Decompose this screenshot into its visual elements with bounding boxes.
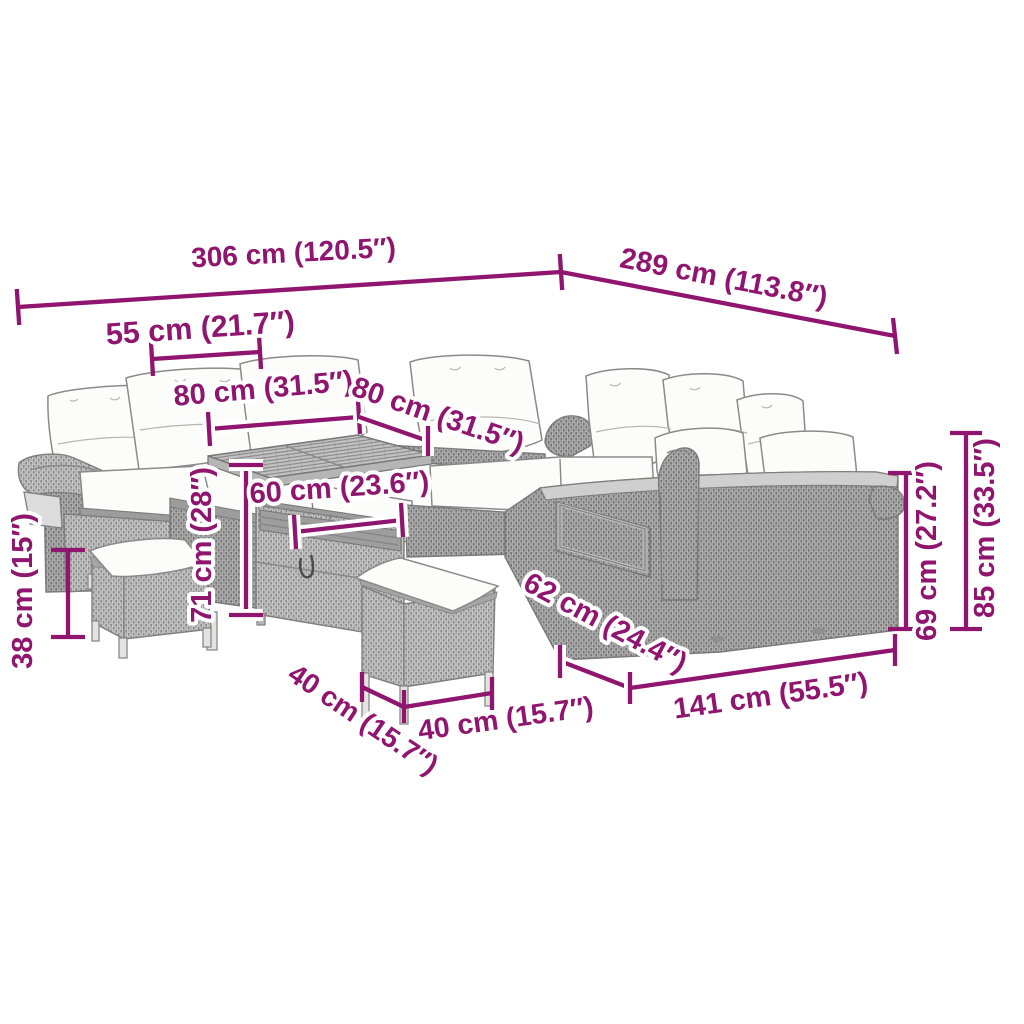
svg-text:69 cm (27.2″): 69 cm (27.2″) [911,461,943,641]
svg-text:71 cm (28″): 71 cm (28″) [186,467,218,623]
svg-text:38 cm (15″): 38 cm (15″) [7,513,39,669]
svg-text:85 cm (33.5″): 85 cm (33.5″) [969,438,1001,618]
